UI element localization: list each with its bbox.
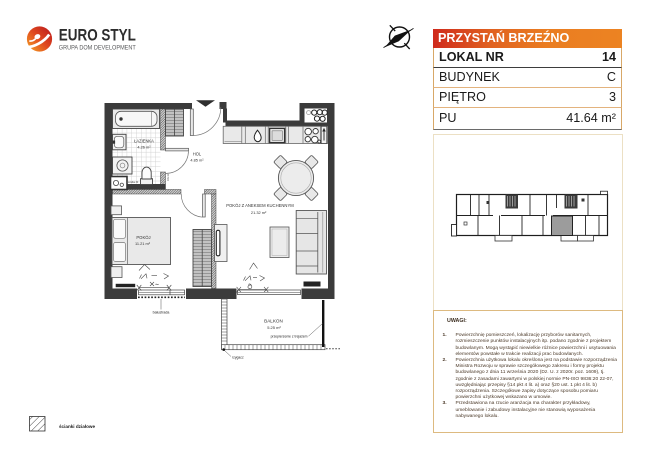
svg-text:przepierzenie z trejażem: przepierzenie z trejażem (271, 335, 308, 339)
svg-text:ŁAZIENKA: ŁAZIENKA (134, 138, 154, 143)
svg-text:5.25 m²: 5.25 m² (267, 325, 281, 330)
svg-text:11.21 m²: 11.21 m² (135, 241, 151, 246)
svg-text:21.32 m²: 21.32 m² (251, 210, 267, 215)
svg-text:EURO STYL: EURO STYL (59, 26, 136, 44)
svg-text:POKÓJ Z ANEKSEM KUCHENNYM: POKÓJ Z ANEKSEM KUCHENNYM (226, 203, 294, 208)
svg-text:szafka 30: szafka 30 (128, 181, 139, 184)
svg-text:BALKON: BALKON (264, 319, 283, 324)
svg-text:16x11: 16x11 (166, 173, 170, 181)
svg-text:balustrada: balustrada (153, 311, 170, 315)
svg-text:4.85 m²: 4.85 m² (190, 158, 204, 163)
svg-text:rzygacz: rzygacz (232, 356, 244, 360)
svg-text:POKÓJ: POKÓJ (136, 235, 150, 240)
svg-text:ścianki działowe: ścianki działowe (59, 424, 95, 429)
svg-text:GRUPA DOM DEVELOPMENT: GRUPA DOM DEVELOPMENT (59, 45, 136, 52)
svg-text:HOL: HOL (193, 151, 202, 156)
svg-text:4.26 m²: 4.26 m² (137, 145, 151, 150)
